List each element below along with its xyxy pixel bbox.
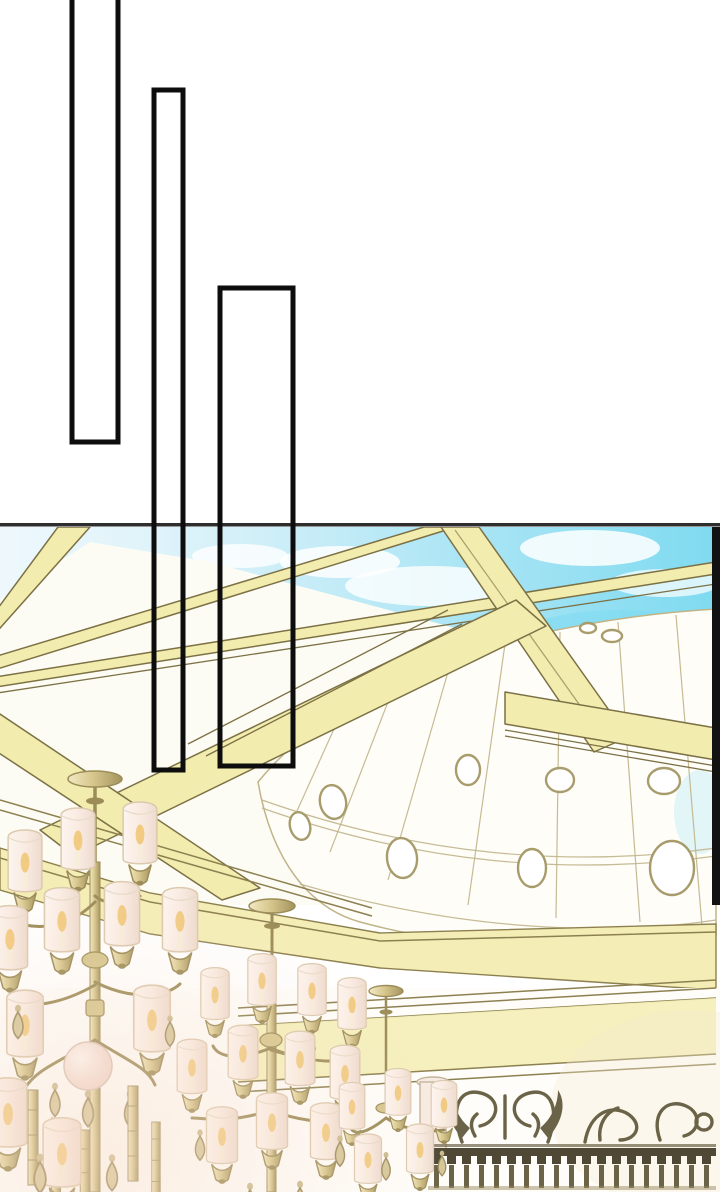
comic-page	[0, 0, 720, 1192]
panel-illustration	[0, 0, 720, 1192]
panel-right-edge-strip	[712, 527, 720, 905]
ballroom-ceiling-artwork	[0, 527, 720, 1192]
panel-divider-line	[0, 523, 720, 527]
panel-frame-vertical-1	[72, 0, 118, 442]
